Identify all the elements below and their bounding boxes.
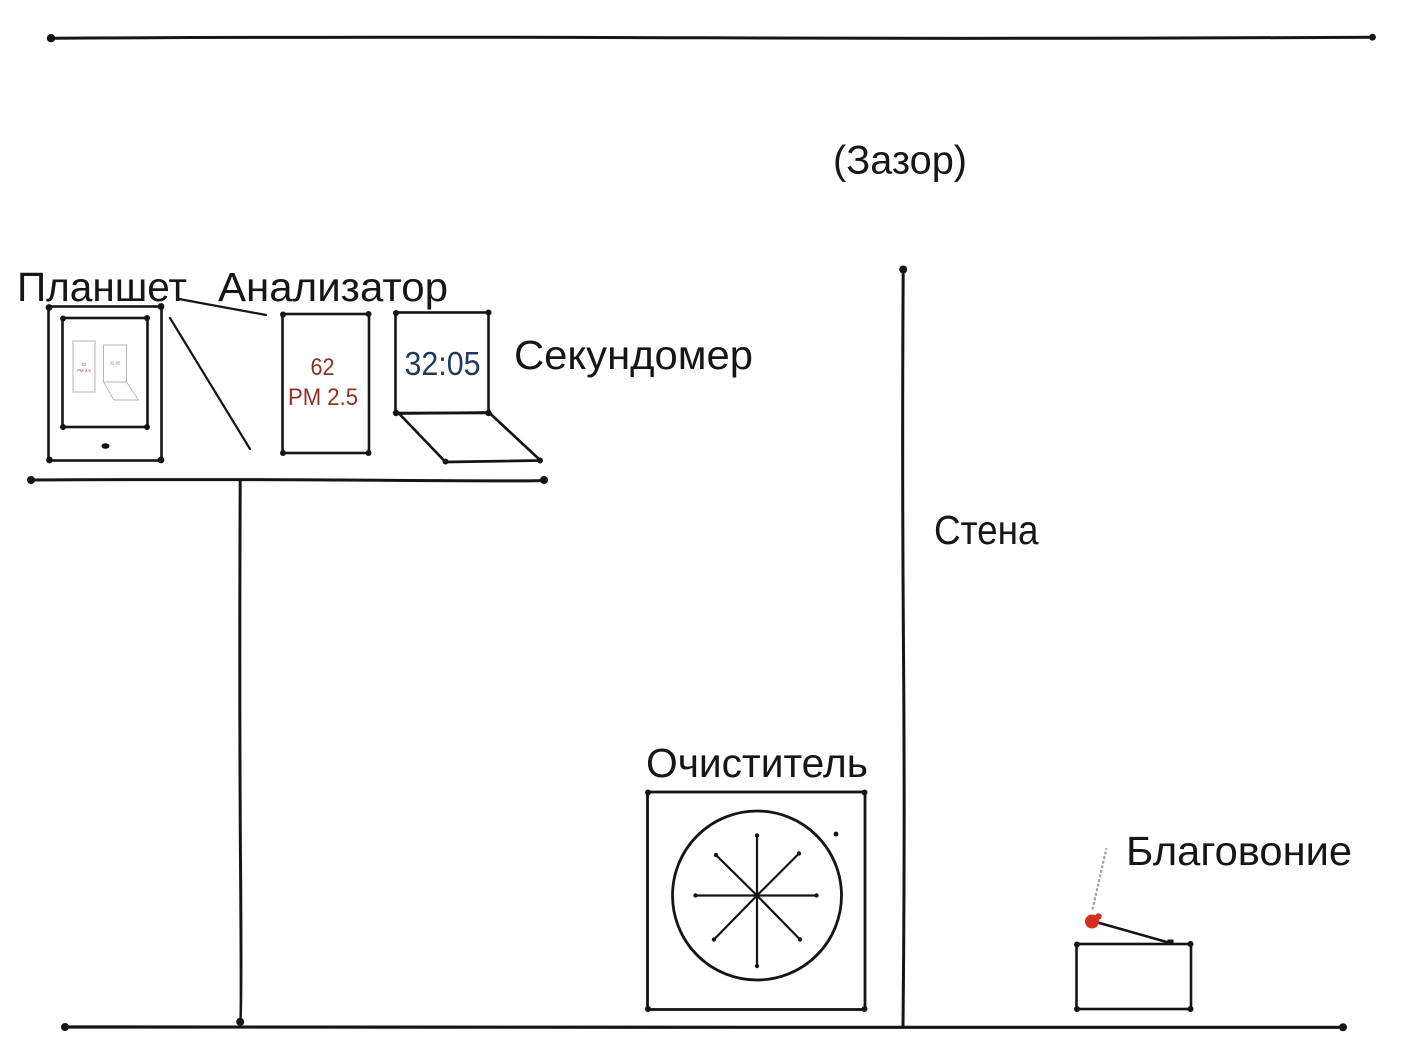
svg-text:Анализатор: Анализатор	[218, 264, 448, 310]
svg-text:PM 2.5: PM 2.5	[77, 368, 91, 373]
svg-text:32:05: 32:05	[405, 345, 481, 382]
svg-text:Секундомер: Секундомер	[514, 332, 753, 378]
svg-text:Планшет: Планшет	[17, 264, 187, 310]
svg-text:Благовоние: Благовоние	[1126, 828, 1352, 874]
svg-text:(Зазор): (Зазор)	[833, 139, 967, 183]
svg-text:32:05: 32:05	[110, 361, 121, 366]
svg-text:62: 62	[311, 354, 335, 381]
svg-text:PM 2.5: PM 2.5	[288, 384, 358, 411]
svg-text:Стена: Стена	[934, 507, 1039, 553]
svg-text:Очиститель: Очиститель	[646, 740, 868, 786]
svg-text:62: 62	[82, 362, 87, 367]
